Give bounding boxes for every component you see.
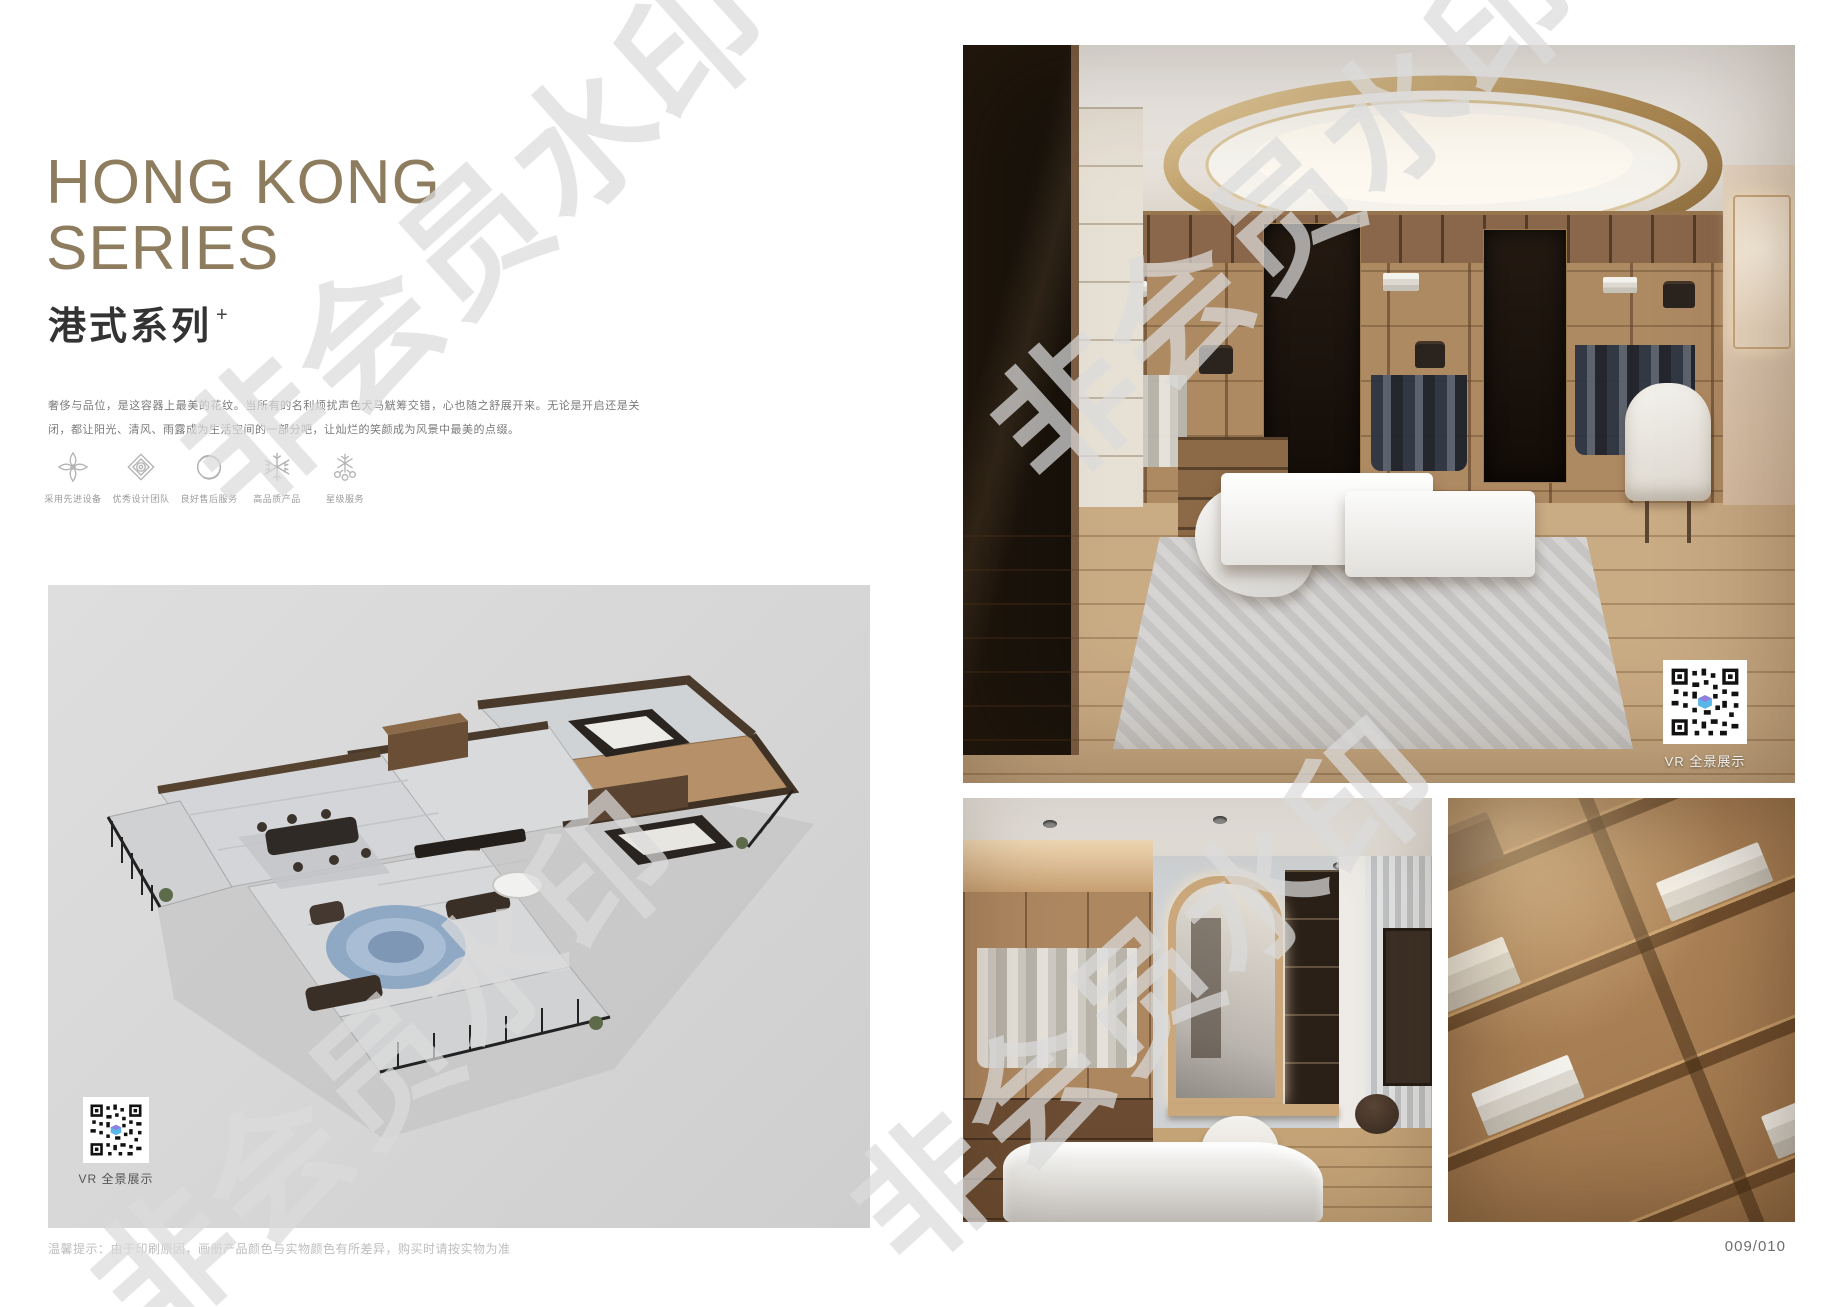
series-description: 奢侈与品位，是这容器上最美的花纹。当所有的名利烦扰声色犬马觥筹交错，心也随之舒展… <box>48 394 640 442</box>
floor-plan-panel: VR 全景展示 <box>48 585 870 1228</box>
series-title-line2: SERIES <box>46 216 441 282</box>
rings-icon <box>192 450 226 484</box>
ornament-flower-icon <box>56 450 90 484</box>
feature-label: 良好售后服务 <box>180 492 237 505</box>
shelf-detail-photo <box>1448 798 1795 1222</box>
feature-icon-row: 采用先进设备 优秀设计团队 良好售后服务 高品质产品 <box>44 450 374 505</box>
floorplan-vr-caption: VR 全景展示 <box>68 1170 164 1187</box>
snowflake-icon <box>260 450 294 484</box>
dressing-corner-photo <box>963 798 1432 1222</box>
feature-label: 优秀设计团队 <box>112 492 169 505</box>
feature-after-sales: 良好售后服务 <box>180 450 238 505</box>
main-photo-qr-code <box>1663 660 1747 744</box>
feature-design-team: 优秀设计团队 <box>112 450 170 505</box>
feature-label: 高品质产品 <box>253 492 301 505</box>
feature-equipment: 采用先进设备 <box>44 450 102 505</box>
plus-mark: + <box>216 304 231 326</box>
ornament-diamond-icon <box>124 450 158 484</box>
feature-quality: 高品质产品 <box>248 450 306 505</box>
print-disclaimer: 温馨提示：由于印刷原因，画册产品颜色与实物颜色有所差异，购买时请按实物为准 <box>48 1240 511 1257</box>
star-service-icon <box>328 450 362 484</box>
main-photo-vr-caption: VR 全景展示 <box>1649 751 1761 770</box>
series-title-line1: HONG KONG <box>46 150 441 216</box>
photo-vignette <box>963 798 1432 1222</box>
series-subtitle: 港式系列+ <box>48 295 227 350</box>
catalog-spread: HONG KONG SERIES 港式系列+ 奢侈与品位，是这容器上最美的花纹。… <box>0 0 1836 1307</box>
photo-vignette <box>1448 798 1795 1222</box>
feature-label: 采用先进设备 <box>44 492 101 505</box>
feature-star-service: 星级服务 <box>316 450 374 505</box>
page-number: 009/010 <box>1725 1238 1786 1255</box>
qr-pattern <box>87 1101 145 1159</box>
series-title: HONG KONG SERIES <box>46 150 441 282</box>
feature-label: 星级服务 <box>326 492 364 505</box>
qr-pattern <box>1667 664 1743 740</box>
floor-plan-illustration <box>48 585 870 1228</box>
series-subtitle-text: 港式系列 <box>48 306 212 348</box>
floorplan-qr-code <box>83 1097 149 1163</box>
walk-in-closet-photo: VR 全景展示 <box>963 45 1795 783</box>
